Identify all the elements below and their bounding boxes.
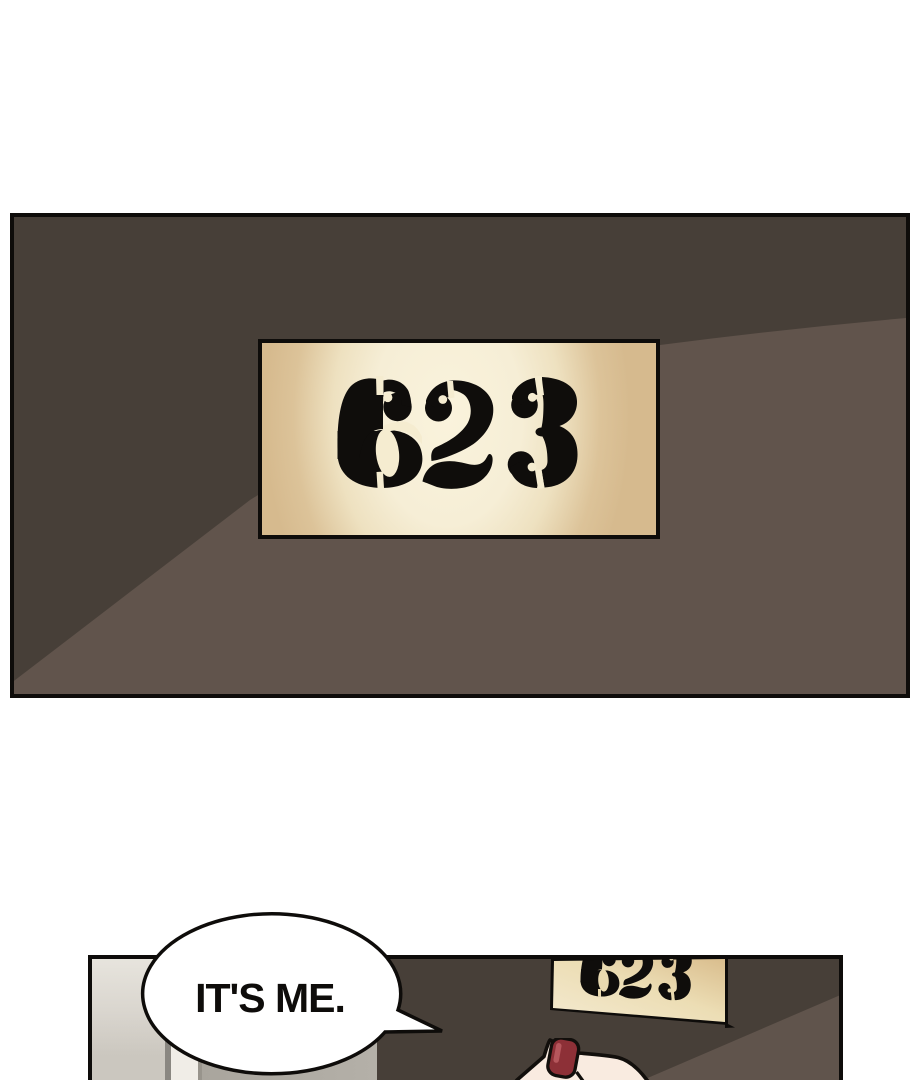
svg-text:IT'S ME.: IT'S ME. xyxy=(195,975,345,1021)
